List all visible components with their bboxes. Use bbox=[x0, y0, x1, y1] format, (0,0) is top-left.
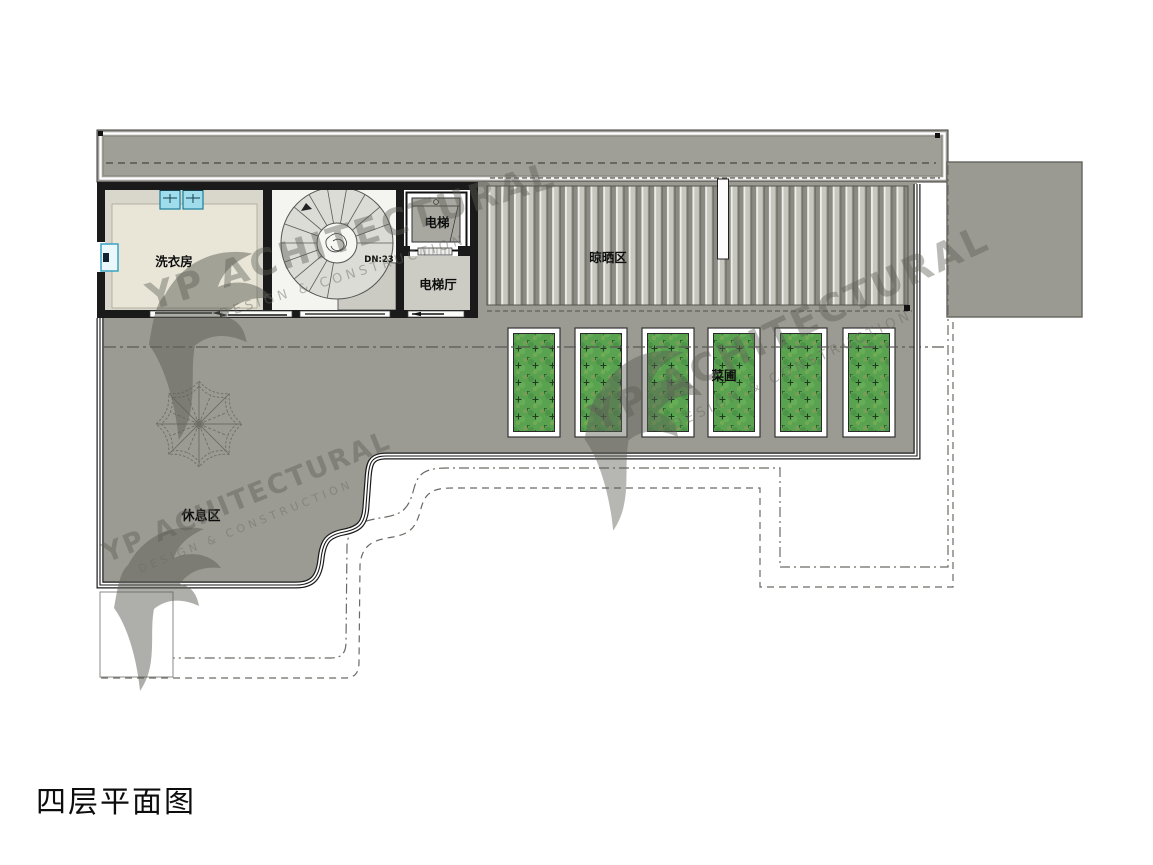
floor-plan-canvas: 晾晒区 菜圃 洗衣房 bbox=[0, 0, 1153, 865]
elevator-hall: 电梯厅 bbox=[404, 256, 470, 310]
drying-area-label: 晾晒区 bbox=[589, 250, 627, 265]
sliding-door bbox=[300, 311, 390, 317]
sliding-door bbox=[408, 311, 464, 317]
floor-plan-page: { "title": { "label": "四层平面图" }, "labels… bbox=[0, 0, 1153, 865]
corner-marker bbox=[935, 133, 940, 138]
pergola-beam bbox=[718, 179, 729, 259]
patio-umbrella bbox=[156, 381, 242, 467]
corner-marker bbox=[98, 131, 103, 136]
planter-box bbox=[508, 328, 560, 437]
laundry-entry-door bbox=[101, 244, 118, 271]
elevator-hall-label: 电梯厅 bbox=[419, 277, 457, 292]
drawing-title: 四层平面图 bbox=[36, 785, 196, 820]
